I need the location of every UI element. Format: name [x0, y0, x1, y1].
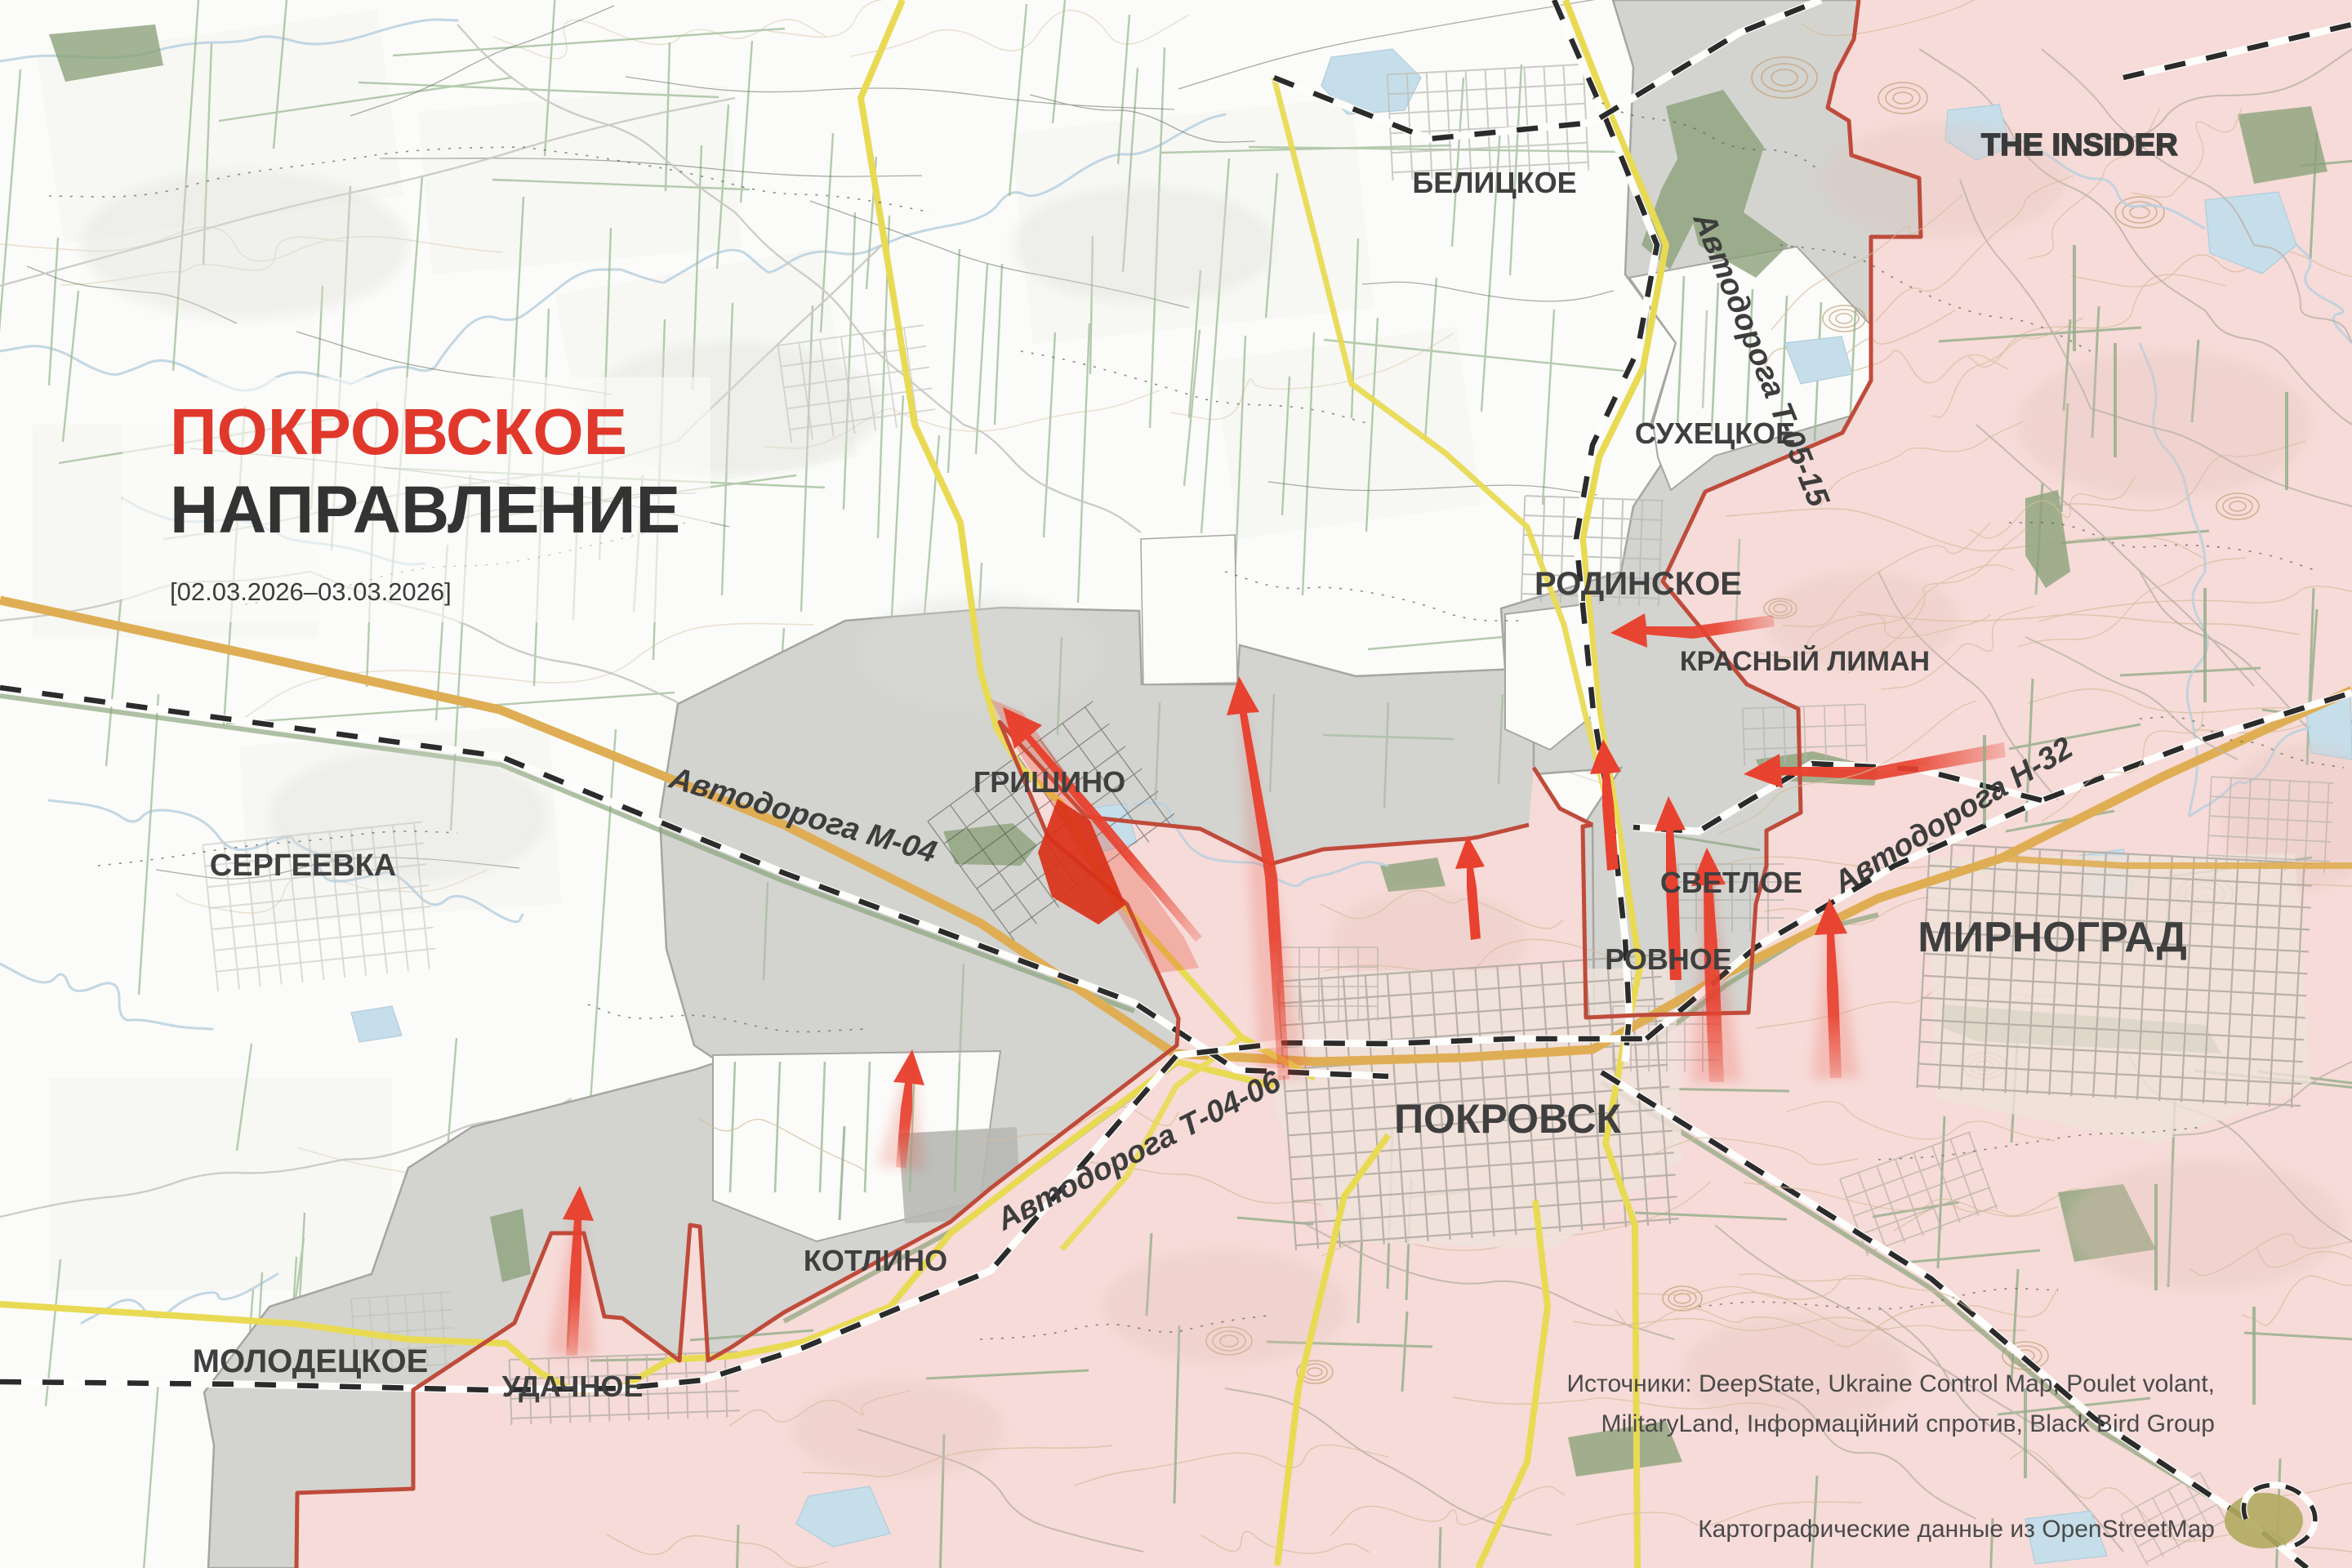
svg-text:БЕЛИЦКОЕ: БЕЛИЦКОЕ [1412, 166, 1576, 199]
svg-text:КОТЛИНО: КОТЛИНО [804, 1244, 947, 1277]
svg-text:THE INSIDER: THE INSIDER [1981, 128, 2178, 163]
svg-text:УДАЧНОЕ: УДАЧНОЕ [502, 1370, 644, 1403]
svg-text:МОЛОДЕЦКОЕ: МОЛОДЕЦКОЕ [193, 1343, 429, 1379]
svg-text:МИРНОГРАД: МИРНОГРАД [1918, 914, 2187, 961]
svg-text:ПОКРОВСК: ПОКРОВСК [1394, 1096, 1621, 1142]
svg-text:КРАСНЫЙ ЛИМАН: КРАСНЫЙ ЛИМАН [1680, 645, 1930, 677]
svg-text:ГРИШИНО: ГРИШИНО [973, 765, 1125, 799]
svg-text:РОДИНСКОЕ: РОДИНСКОЕ [1535, 566, 1742, 602]
svg-text:СВЕТЛОЕ: СВЕТЛОЕ [1660, 866, 1802, 899]
svg-text:НАПРАВЛЕНИЕ: НАПРАВЛЕНИЕ [170, 473, 680, 547]
svg-text:СЕРГЕЕВКА: СЕРГЕЕВКА [210, 849, 396, 883]
svg-text:ПОКРОВСКОЕ: ПОКРОВСКОЕ [170, 395, 627, 468]
svg-text:Картографические данные из Ope: Картографические данные из OpenStreetMap [1698, 1516, 2215, 1543]
svg-text:[02.03.2026–03.03.2026]: [02.03.2026–03.03.2026] [170, 577, 452, 606]
svg-text:Источники: DeepState, Ukraine: Источники: DeepState, Ukraine Control Ma… [1566, 1370, 2215, 1397]
svg-text:РОВНОЕ: РОВНОЕ [1605, 942, 1732, 976]
svg-text:MilitaryLand, Інформаційний сп: MilitaryLand, Інформаційний спротив, Bla… [1601, 1410, 2215, 1437]
